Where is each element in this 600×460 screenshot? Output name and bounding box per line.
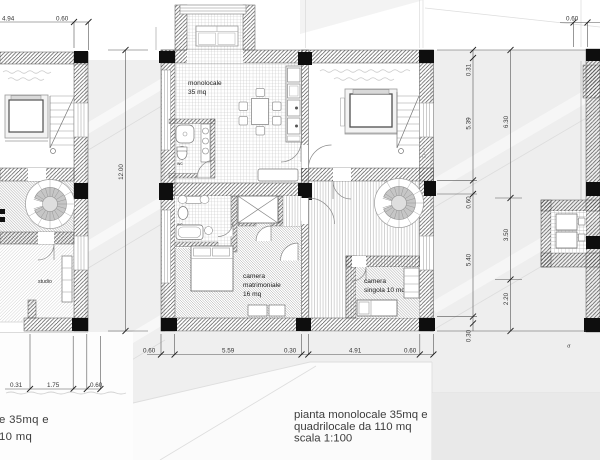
svg-text:0.60: 0.60 [56,16,69,23]
svg-text:camera: camera [364,278,386,285]
svg-text:16 mq: 16 mq [243,291,262,298]
svg-text:matrimoniale: matrimoniale [243,282,281,289]
svg-text:3.50: 3.50 [503,228,510,241]
svg-text:camera: camera [243,273,265,280]
svg-text:4.94: 4.94 [2,16,15,23]
svg-text:pianta monolocale 35mq e: pianta monolocale 35mq e [294,409,428,421]
svg-text:5.40: 5.40 [466,253,473,266]
svg-text:2.20: 2.20 [503,292,510,305]
svg-text:e 35mq e: e 35mq e [0,414,49,426]
svg-text:quadrilocale da 110 mq: quadrilocale da 110 mq [294,421,412,433]
svg-text:0.60: 0.60 [566,16,579,23]
svg-text:studio: studio [38,279,52,285]
svg-text:0.30: 0.30 [466,329,473,342]
svg-text:12.00: 12.00 [118,164,125,180]
svg-text:monolocale: monolocale [188,80,222,87]
svg-text:10 mq: 10 mq [0,431,32,443]
svg-text:5.59: 5.59 [222,348,235,355]
svg-text:4.91: 4.91 [349,348,362,355]
svg-text:6.30: 6.30 [503,115,510,128]
svg-text:0.30: 0.30 [284,348,297,355]
svg-text:scala 1:100: scala 1:100 [294,433,352,445]
svg-text:0.31: 0.31 [466,63,473,76]
svg-text:0.60: 0.60 [466,196,473,209]
svg-text:singola 10 mq: singola 10 mq [364,287,405,294]
svg-text:1.75: 1.75 [47,382,60,389]
svg-text:0.60: 0.60 [404,348,417,355]
svg-text:0.60: 0.60 [143,348,156,355]
svg-text:0.31: 0.31 [10,382,23,389]
svg-text:wc: wc [177,161,183,166]
svg-text:5.39: 5.39 [466,117,473,130]
svg-text:35 mq: 35 mq [188,89,207,96]
svg-text:0.60: 0.60 [90,382,103,389]
